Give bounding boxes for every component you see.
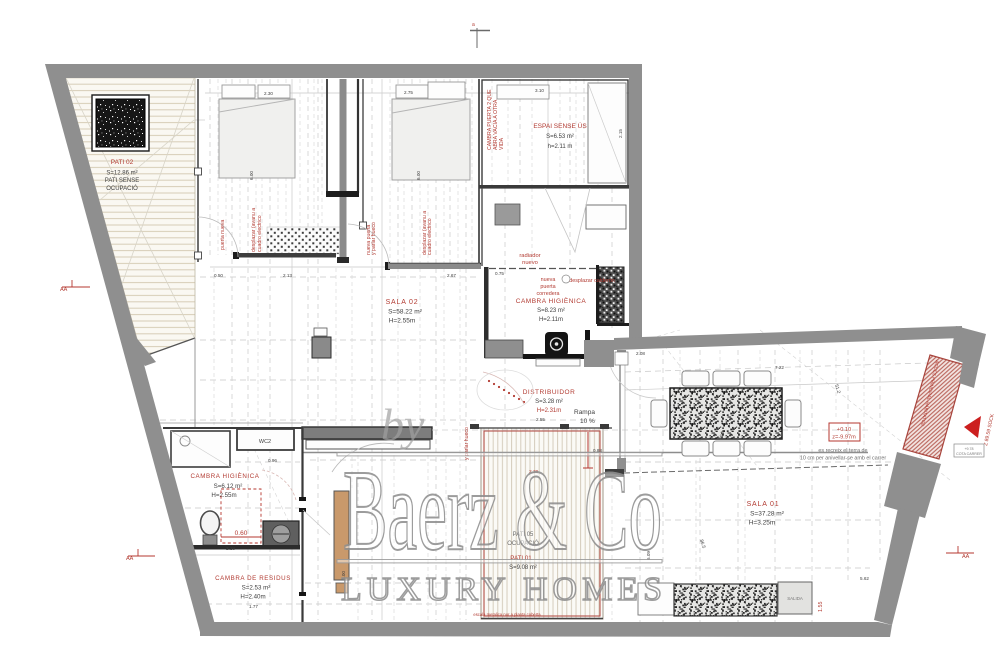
svg-text:5.62: 5.62 <box>860 576 869 581</box>
svg-text:S=2.53 m²: S=2.53 m² <box>242 585 271 592</box>
svg-text:2.75: 2.75 <box>404 90 413 95</box>
svg-text:es recreix el terra de: es recreix el terra de <box>818 448 867 454</box>
svg-text:6.00: 6.00 <box>249 171 254 180</box>
svg-text:S=37.28 m²: S=37.28 m² <box>750 511 785 518</box>
svg-text:0.60: 0.60 <box>235 530 248 537</box>
svg-text:VIDA: VIDA <box>499 137 505 150</box>
svg-text:2.55: 2.55 <box>536 417 545 422</box>
svg-text:OCUPACIÓ: OCUPACIÓ <box>106 185 138 192</box>
svg-text:escala metalica nur a planta c: escala metalica nur a planta coberta <box>473 612 541 617</box>
svg-text:COTA CARRER: COTA CARRER <box>956 452 982 456</box>
svg-text:H=2.11m: H=2.11m <box>539 317 563 323</box>
svg-text:SALA 01: SALA 01 <box>747 501 780 508</box>
svg-text:H=3.25m: H=3.25m <box>749 520 776 527</box>
svg-text:AA: AA <box>962 554 970 560</box>
svg-text:7.22: 7.22 <box>775 365 784 370</box>
svg-text:DISTRIBUIDOR: DISTRIBUIDOR <box>523 389 576 396</box>
svg-text:PATI 02: PATI 02 <box>111 159 134 166</box>
svg-text:H=2.55m: H=2.55m <box>211 492 236 499</box>
svg-text:0.75: 0.75 <box>495 271 504 276</box>
svg-text:S=58.22 m²: S=58.22 m² <box>388 309 423 316</box>
svg-text:6.00: 6.00 <box>416 171 421 180</box>
svg-text:h=2.11 m: h=2.11 m <box>548 144 573 150</box>
svg-text:nueva: nueva <box>541 277 556 283</box>
svg-text:by: by <box>381 399 425 450</box>
svg-text:SALIDA: SALIDA <box>787 596 803 601</box>
svg-text:ESPAI SENSE ÚS: ESPAI SENSE ÚS <box>533 121 587 130</box>
svg-text:+9.78: +9.78 <box>964 447 973 451</box>
svg-text:S=6.53 m²: S=6.53 m² <box>546 134 574 140</box>
svg-text:CAMBRA HIGIÈNICA: CAMBRA HIGIÈNICA <box>516 296 587 305</box>
svg-text:z=-9.97m: z=-9.97m <box>832 435 856 441</box>
svg-text:1.77: 1.77 <box>249 604 258 609</box>
svg-text:AA: AA <box>60 287 68 293</box>
svg-text:10 %: 10 % <box>580 418 595 425</box>
svg-text:Rampa: Rampa <box>574 409 595 416</box>
svg-text:PATI SENSE: PATI SENSE <box>105 178 139 184</box>
svg-text:CAMBRA DE RESIDUS: CAMBRA DE RESIDUS <box>215 575 291 582</box>
svg-text:y parlar hueco: y parlar hueco <box>371 222 377 255</box>
svg-text:nuevo: nuevo <box>522 260 538 266</box>
svg-text:H=2.55m: H=2.55m <box>389 318 416 325</box>
svg-text:2.67: 2.67 <box>447 273 456 278</box>
svg-text:0.50: 0.50 <box>214 273 223 278</box>
svg-text:2.30: 2.30 <box>264 91 273 96</box>
svg-text:corredera: corredera <box>536 291 559 297</box>
svg-text:puerta: puerta <box>540 284 555 290</box>
svg-text:2.13: 2.13 <box>283 273 292 278</box>
svg-text:3.10: 3.10 <box>535 88 544 93</box>
svg-text:CAMBRA HIGIÈNICA: CAMBRA HIGIÈNICA <box>190 473 259 480</box>
svg-text:2.08: 2.08 <box>636 351 645 356</box>
svg-text:SALA 02: SALA 02 <box>386 299 419 306</box>
svg-text:S=3.28 m²: S=3.28 m² <box>535 399 563 405</box>
svg-text:desplazar calderón: desplazar calderón <box>569 278 615 284</box>
svg-text:10 cm per anivellar-se amb el: 10 cm per anivellar-se amb el carrer <box>800 456 886 462</box>
svg-text:1.55: 1.55 <box>818 602 824 613</box>
svg-text:S=12.86 m²: S=12.86 m² <box>106 171 137 177</box>
svg-text:AA: AA <box>126 556 134 562</box>
svg-text:cuadro electrico: cuadro electrico <box>257 215 263 252</box>
svg-text:H=2.31m: H=2.31m <box>537 408 562 414</box>
svg-text:0.96: 0.96 <box>268 458 277 463</box>
svg-text:puerta nueva: puerta nueva <box>220 220 226 250</box>
svg-text:2.18: 2.18 <box>226 546 235 551</box>
svg-text:a: a <box>472 22 475 28</box>
svg-text:+0.10: +0.10 <box>837 427 851 433</box>
svg-text:WC2: WC2 <box>259 439 271 445</box>
svg-text:radiador: radiador <box>519 253 540 259</box>
svg-text:H=2.40m: H=2.40m <box>240 594 265 601</box>
svg-text:cuadro electrico: cuadro electrico <box>427 218 433 255</box>
svg-text:Baerz & Co: Baerz & Co <box>343 447 662 575</box>
svg-text:S=8.23 m²: S=8.23 m² <box>537 308 565 314</box>
svg-text:2.15: 2.15 <box>618 129 623 138</box>
